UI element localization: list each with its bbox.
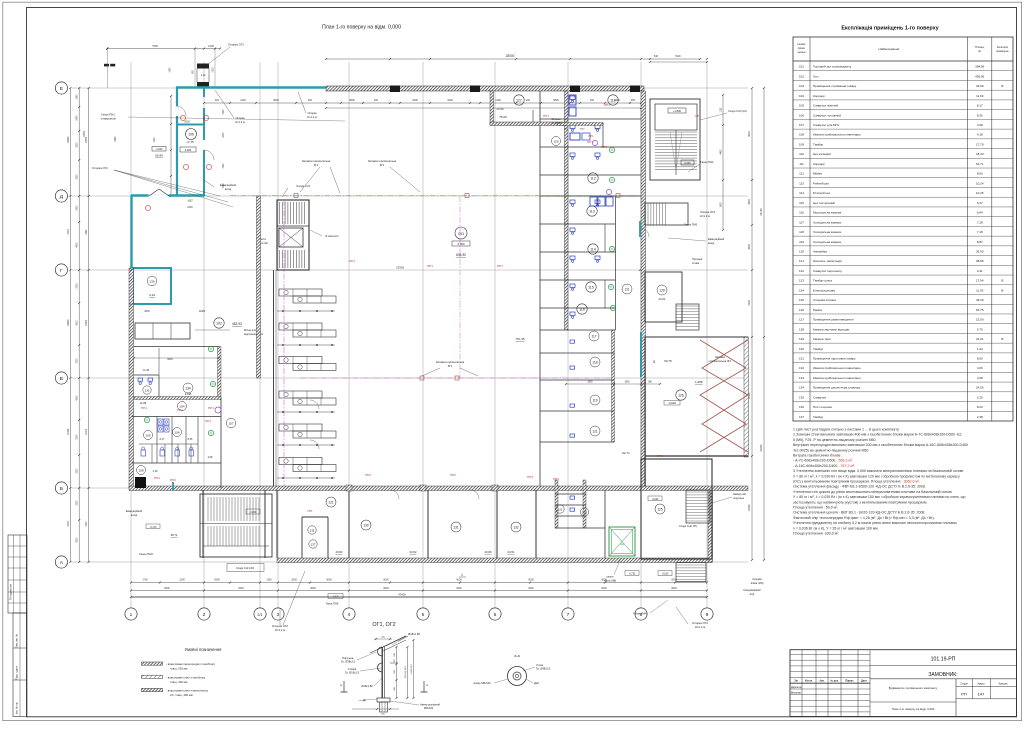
svg-text:ОГ1, ОГ2: ОГ1, ОГ2 <box>372 622 395 628</box>
svg-text:102: 102 <box>799 74 804 78</box>
svg-text:8,00: 8,00 <box>977 357 983 361</box>
svg-text:2000: 2000 <box>184 121 190 124</box>
svg-text:Ганок ПН5: Ганок ПН5 <box>684 223 698 227</box>
svg-text:118: 118 <box>592 361 597 365</box>
svg-text:(ОС) з вентильованим повітряни: (ОС) з вентильованим повітряним прошарко… <box>793 480 920 484</box>
svg-text:114: 114 <box>799 191 804 195</box>
svg-text:Погодження: Погодження <box>9 584 13 600</box>
svg-text:200: 200 <box>590 99 595 102</box>
svg-text:Холодильна камера: Холодильна камера <box>813 230 841 234</box>
svg-text:2839: 2839 <box>144 310 150 313</box>
svg-text:23,82: 23,82 <box>336 550 343 554</box>
svg-text:7300: 7300 <box>748 300 751 306</box>
svg-text:8,17: 8,17 <box>160 438 165 441</box>
svg-text:Прозора: Прозора <box>692 257 703 261</box>
svg-text:11,92: 11,92 <box>976 288 984 292</box>
svg-text:8400: 8400 <box>214 579 220 582</box>
svg-text:6000: 6000 <box>671 587 677 590</box>
svg-text:2/1: 2/1 <box>257 613 262 617</box>
svg-text:6000: 6000 <box>164 587 170 590</box>
svg-text:115: 115 <box>799 201 804 205</box>
svg-text:131: 131 <box>799 357 804 361</box>
svg-text:4200: 4200 <box>77 537 79 543</box>
svg-text:1100 ОГ2: 1100 ОГ2 <box>411 664 413 674</box>
svg-text:1150: 1150 <box>266 579 272 582</box>
svg-text:ПР1: ПР1 <box>543 114 549 118</box>
svg-text:18,43: 18,43 <box>976 152 984 156</box>
svg-text:6000: 6000 <box>383 587 389 590</box>
svg-text:117: 117 <box>799 220 804 224</box>
svg-text:5: 5 <box>422 612 425 618</box>
svg-text:6: 6 <box>494 612 497 618</box>
svg-text:24,01: 24,01 <box>976 337 984 341</box>
svg-text:4200: 4200 <box>77 320 79 326</box>
svg-text:Категорія: Категорія <box>997 46 1008 49</box>
svg-text:Анкер М8х120: Анкер М8х120 <box>473 681 491 685</box>
svg-text:129: 129 <box>659 289 665 293</box>
svg-text:22300: 22300 <box>759 444 763 452</box>
svg-text:Витрата газобетонних блоків :: Витрата газобетонних блоків : <box>793 454 842 458</box>
svg-text:126: 126 <box>678 394 684 398</box>
svg-text:ПР1: ПР1 <box>349 259 355 263</box>
svg-text:3300: 3300 <box>77 468 79 474</box>
svg-text:стінка: стінка <box>692 261 700 265</box>
svg-text:7,28: 7,28 <box>977 220 983 224</box>
svg-text:455,06: 455,06 <box>975 74 985 78</box>
svg-text:Е: Е <box>60 86 63 92</box>
svg-text:Н=1,2 м: Н=1,2 м <box>700 214 710 218</box>
svg-text:102: 102 <box>216 322 222 326</box>
svg-text:2: 2 <box>203 612 206 618</box>
svg-text:Система утеплення фасаду - ФВТ: Система утеплення фасаду - ФВТ-В3.1-Б500… <box>793 485 926 489</box>
svg-text:М8х100: М8х100 <box>424 706 434 710</box>
svg-text:111: 111 <box>799 162 804 166</box>
svg-text:Сходи Сх2:14%: Сходи Сх2:14% <box>236 567 255 570</box>
svg-text:вихід: вихід <box>225 187 232 191</box>
svg-text:Інв. № ор.: Інв. № ор. <box>15 702 19 714</box>
svg-text:123: 123 <box>582 510 587 514</box>
svg-text:-3,170: -3,170 <box>150 526 157 529</box>
svg-text:8,23: 8,23 <box>977 405 983 409</box>
svg-text:Анкер-розпірний: Анкер-розпірний <box>420 703 440 707</box>
svg-text:-1,800: -1,800 <box>250 512 257 514</box>
svg-text:11000: 11000 <box>86 428 88 435</box>
svg-text:8,35: 8,35 <box>977 113 983 117</box>
svg-text:6000: 6000 <box>310 587 316 590</box>
svg-text:10830: 10830 <box>67 319 70 326</box>
svg-text:Утеплення фундаменту на глибин: Утеплення фундаменту на глибину 3,2 м ни… <box>793 521 957 525</box>
svg-text:Н=1,2 м: Н=1,2 м <box>275 628 285 632</box>
svg-text:зігівка (136): зігівка (136) <box>751 582 764 585</box>
svg-text:11030: 11030 <box>67 428 70 435</box>
svg-text:5800: 5800 <box>553 99 559 102</box>
svg-text:У = 80 кг / м³, λ = 0,039 Вт /: У = 80 кг / м³, λ = 0,039 Вт / (м х К) з… <box>793 474 960 478</box>
svg-text:1: 1 <box>461 573 463 577</box>
svg-text:6950: 6950 <box>167 358 173 361</box>
svg-text:Місце для: Місце для <box>244 328 257 332</box>
svg-text:130: 130 <box>799 347 804 351</box>
svg-text:1700: 1700 <box>142 579 148 582</box>
svg-text:ПР1: ПР1 <box>497 264 503 268</box>
svg-text:Підп. і дата: Підп. і дата <box>15 666 19 680</box>
svg-text:114: 114 <box>590 248 596 252</box>
svg-text:Торговий зал супермаркету: Торговий зал супермаркету <box>813 65 852 69</box>
svg-text:110: 110 <box>610 99 616 103</box>
svg-text:540: 540 <box>654 55 659 58</box>
svg-text:7400: 7400 <box>86 521 88 527</box>
svg-text:2236: 2236 <box>187 206 193 209</box>
svg-text:6000: 6000 <box>456 587 462 590</box>
svg-text:Затяжка горизонтальна: Затяжка горизонтальна <box>368 159 397 163</box>
svg-text:Коридор: Коридор <box>813 162 825 166</box>
svg-text:Тамбур: Тамбур <box>813 347 824 351</box>
svg-text:-0,020: -0,020 <box>332 597 339 599</box>
svg-text:№ док.: № док. <box>830 680 839 683</box>
svg-text:122: 122 <box>799 269 804 273</box>
svg-text:118: 118 <box>799 230 804 234</box>
svg-text:24,01: 24,01 <box>659 297 666 301</box>
svg-text:113: 113 <box>589 210 595 214</box>
svg-text:ПР1: ПР1 <box>587 140 593 144</box>
svg-text:ПР1: ПР1 <box>588 134 594 138</box>
svg-text:0.000: 0.000 <box>458 242 465 246</box>
svg-text:Система утеплення цоколя - ВВТ: Система утеплення цоколя - ВВТ В3.1 - Б0… <box>793 511 925 515</box>
svg-text:122: 122 <box>558 507 563 511</box>
svg-text:Аркуш: Аркуш <box>977 683 984 686</box>
svg-text:Н=1,2 м: Н=1,2 м <box>695 625 705 629</box>
svg-text:1860: 1860 <box>77 94 79 100</box>
svg-text:103: 103 <box>799 84 804 88</box>
svg-text:Сходи Сх3: Сходи Сх3 <box>296 184 310 188</box>
svg-text:6000: 6000 <box>528 579 534 582</box>
svg-text:Опорка: Опорка <box>308 111 317 115</box>
svg-text:примі-: примі- <box>798 46 806 50</box>
svg-text:1: 1 <box>130 612 133 618</box>
svg-text:120: 120 <box>553 139 558 143</box>
svg-text:200: 200 <box>526 99 531 102</box>
svg-text:приміщень: приміщень <box>996 50 1009 53</box>
svg-text:Холодильна камера: Холодильна камера <box>813 240 841 244</box>
svg-text:127: 127 <box>799 318 804 322</box>
svg-text:ПР1: ПР1 <box>601 145 607 149</box>
svg-text:Коридор: Коридор <box>813 94 825 98</box>
svg-text:132: 132 <box>799 366 804 370</box>
svg-text:Н=1,2 м: Н=1,2 м <box>235 120 245 124</box>
svg-text:757,35: 757,35 <box>515 337 525 341</box>
svg-text:4,08: 4,08 <box>977 376 983 380</box>
svg-text:108: 108 <box>799 133 804 137</box>
svg-text:113: 113 <box>799 181 804 185</box>
svg-text:4,18: 4,18 <box>153 470 158 473</box>
svg-text:Приміщення рамки введення: Приміщення рамки введення <box>813 318 854 322</box>
svg-text:Опорка: Опорка <box>236 116 245 120</box>
svg-text:1923: 1923 <box>154 137 156 143</box>
svg-text:1300: 1300 <box>208 44 214 48</box>
svg-text:4850: 4850 <box>748 199 751 205</box>
svg-text:4,18: 4,18 <box>977 133 983 137</box>
svg-text:4,31: 4,31 <box>977 269 983 273</box>
svg-text:Ганок ПН2: Ганок ПН2 <box>700 160 714 164</box>
svg-text:Умовні позначення: Умовні позначення <box>185 647 222 652</box>
svg-text:10930: 10930 <box>67 136 70 143</box>
svg-text:5400: 5400 <box>675 55 681 58</box>
svg-text:0.000: 0.000 <box>185 148 192 152</box>
svg-text:горизонтальна ЗГ1: горизонтальна ЗГ1 <box>709 359 732 363</box>
svg-text:3200: 3200 <box>77 500 79 506</box>
svg-text:М`ясний цех: М`ясний цех <box>813 191 831 195</box>
svg-text:поручень: поручень <box>733 497 745 500</box>
svg-text:62,71: 62,71 <box>622 451 630 455</box>
svg-text:9600: 9600 <box>349 99 355 102</box>
svg-text:-Б2 (М25) на цементно-піщаному: -Б2 (М25) на цементно-піщаному розчині М… <box>793 448 869 452</box>
svg-text:Чанмийка: Чанмийка <box>813 249 827 253</box>
svg-text:950 (Н) ОГ1: 950 (Н) ОГ1 <box>405 665 407 678</box>
svg-text:116: 116 <box>579 308 585 312</box>
svg-text:Приміщення підготовки товару: Приміщення підготовки товару <box>813 357 856 361</box>
svg-text:119: 119 <box>592 399 597 403</box>
svg-text:110: 110 <box>799 152 804 156</box>
svg-text:- влаштовані стіни з монолітно: - влаштовані стіни з монолітного <box>166 689 209 693</box>
svg-text:Зам. інв. №: Зам. інв. № <box>15 634 19 648</box>
svg-text:застосовують, що нагвинчують (: застосовують, що нагвинчують (кустом) з … <box>793 500 927 504</box>
svg-text:Опорка ОГ1: Опорка ОГ1 <box>92 166 108 170</box>
svg-text:1523: 1523 <box>223 109 225 115</box>
svg-text:124: 124 <box>799 288 804 292</box>
svg-text:60,75: 60,75 <box>664 359 672 363</box>
svg-text:шахта: шахта <box>606 576 614 579</box>
svg-text:6000: 6000 <box>528 587 534 590</box>
svg-text:200: 200 <box>374 99 379 102</box>
svg-text:ПР2: ПР2 <box>365 473 371 477</box>
svg-text:136: 136 <box>149 280 154 284</box>
svg-text:-0,020: -0,020 <box>652 499 659 501</box>
svg-text:2,20: 2,20 <box>977 395 983 399</box>
svg-text:щення: щення <box>798 51 806 54</box>
svg-text:ПР1: ПР1 <box>205 419 211 423</box>
svg-text:4,08: 4,08 <box>977 123 983 127</box>
svg-text:1303: 1303 <box>213 67 215 73</box>
svg-text:Виконав: Виконав <box>791 692 801 695</box>
svg-text:1400: 1400 <box>495 99 501 102</box>
svg-text:Тр. Ø38х2,5: Тр. Ø38х2,5 <box>536 667 551 671</box>
svg-text:Санвузол: Санвузол <box>813 395 826 399</box>
svg-text:4800: 4800 <box>748 244 751 250</box>
svg-text:60,75: 60,75 <box>976 308 984 312</box>
svg-text:4200: 4200 <box>77 395 79 401</box>
svg-text:Н=1,2 м: Н=1,2 м <box>307 115 317 119</box>
svg-text:117: 117 <box>591 335 596 339</box>
svg-text:Комунікаційний: Комунікаційний <box>743 589 761 592</box>
svg-text:121: 121 <box>592 430 598 434</box>
svg-text:ПР1: ПР1 <box>604 103 610 107</box>
svg-text:38,71: 38,71 <box>171 533 178 537</box>
svg-text:2600: 2600 <box>77 205 79 211</box>
svg-text:6000: 6000 <box>601 587 607 590</box>
svg-text:Тамбур: Тамбур <box>813 415 824 419</box>
svg-text:вихід: вихід <box>708 241 715 245</box>
svg-text:107: 107 <box>799 123 804 127</box>
svg-text:- влаштовані перегородки з газ: - влаштовані перегородки з газоблоку <box>166 662 216 666</box>
svg-text:17,70: 17,70 <box>976 142 984 146</box>
svg-text:121: 121 <box>328 501 334 505</box>
svg-text:2 Зовнішні стіни виконати завт: 2 Зовнішні стіни виконати завтовшки 400 … <box>793 433 962 437</box>
svg-text:товщ. 200 мм: товщ. 200 мм <box>170 667 188 671</box>
svg-text:ЗГ1: ЗГ1 <box>448 364 453 368</box>
svg-text:-2.000: -2.000 <box>156 148 163 151</box>
svg-text:2400: 2400 <box>77 115 79 121</box>
svg-text:Внутрішні перегородки виконати: Внутрішні перегородки виконати завтовшки… <box>793 443 968 447</box>
svg-text:1520: 1520 <box>223 163 225 169</box>
svg-text:Сходи Сх2( і41): Сходи Сх2( і41) <box>728 109 747 113</box>
svg-text:101.19-РП: 101.19-РП <box>931 657 956 663</box>
svg-text:24739: 24739 <box>759 208 763 216</box>
svg-text:125: 125 <box>799 298 804 302</box>
svg-text:1.12: 1.12 <box>201 74 206 77</box>
svg-text:1687: 1687 <box>187 200 193 203</box>
svg-text:9: 9 <box>706 612 709 618</box>
svg-text:3300: 3300 <box>77 358 79 364</box>
svg-text:133: 133 <box>145 388 150 392</box>
svg-text:Сходи Сх4( і37): Сходи Сх4( і37) <box>679 525 697 528</box>
svg-text:План 1-го поверху на відм. 0,: План 1-го поверху на відм. 0,000 <box>322 25 401 31</box>
svg-text:9440: 9440 <box>115 136 117 142</box>
svg-text:1180: 1180 <box>721 107 723 113</box>
svg-text:Ø18х1,80: Ø18х1,80 <box>361 684 373 688</box>
svg-text:38,80: 38,80 <box>976 259 984 263</box>
svg-text:+7,75: +7,75 <box>186 140 194 144</box>
svg-text:Поручень: Поручень <box>342 656 354 660</box>
svg-text:1930: 1930 <box>624 382 630 384</box>
svg-text:1 Цей лист розглядати спільно: 1 Цей лист розглядати спільно з листами … <box>793 428 899 432</box>
svg-text:Утеплення стін цоколя до рівня: Утеплення стін цоколя до рівня землі вик… <box>793 490 952 494</box>
svg-text:ПР1: ПР1 <box>208 406 214 410</box>
svg-text:5,70: 5,70 <box>977 327 983 331</box>
svg-text:137: 137 <box>311 542 316 546</box>
svg-text:6,27: 6,27 <box>977 201 983 205</box>
svg-text:62,71: 62,71 <box>976 162 984 166</box>
svg-text:137: 137 <box>799 415 804 419</box>
svg-text:200: 200 <box>215 99 220 102</box>
svg-text:Евакуаційний: Евакуаційний <box>220 183 237 187</box>
svg-text:а-а: а-а <box>514 654 519 658</box>
svg-text:8,87: 8,87 <box>977 240 983 244</box>
svg-text:Хол: Хол <box>813 74 819 78</box>
svg-text:12830: 12830 <box>84 130 86 137</box>
svg-text:ПР2: ПР2 <box>170 478 176 482</box>
svg-text:23,80: 23,80 <box>485 550 492 554</box>
svg-text:Підпис: Підпис <box>845 680 854 683</box>
svg-text:4,08: 4,08 <box>208 456 213 459</box>
svg-text:Камера тари: Камера тари <box>813 337 831 341</box>
svg-text:Кімната прибирального інвентар: Кімната прибирального інвентарю <box>813 133 861 137</box>
svg-text:ПР1: ПР1 <box>141 406 147 410</box>
svg-text:- А-7С-608х408х200-D500 - 568,: - А-7С-608х408х200-D500 - 568,3 м³. <box>793 459 853 463</box>
svg-text:121: 121 <box>799 259 804 263</box>
svg-text:11,60: 11,60 <box>976 94 984 98</box>
svg-text:8,35: 8,35 <box>188 438 193 441</box>
svg-text:6,23: 6,23 <box>149 293 155 297</box>
svg-text:17,94: 17,94 <box>976 279 984 283</box>
svg-text:Санвузол для МГН: Санвузол для МГН <box>813 123 839 127</box>
svg-text:15,00: 15,00 <box>976 318 984 322</box>
svg-text:125: 125 <box>657 508 663 512</box>
svg-text:4420: 4420 <box>721 149 723 155</box>
svg-text:384,56: 384,56 <box>975 65 985 69</box>
svg-text:107: 107 <box>228 421 233 425</box>
svg-text:Санвузол персоналу: Санвузол персоналу <box>813 269 842 273</box>
svg-text:Арк.: Арк. <box>819 680 824 683</box>
svg-text:Найменування: Найменування <box>879 47 900 51</box>
svg-text:ліфта (і38): ліфта (і38) <box>604 580 616 583</box>
svg-text:23,82: 23,82 <box>410 550 417 554</box>
svg-text:Тр. Ø38х2,5: Тр. Ø38х2,5 <box>341 660 356 664</box>
svg-text:24,51: 24,51 <box>508 550 515 554</box>
svg-text:Приміщення диспетчера сховища: Приміщення диспетчера сховища <box>813 386 860 390</box>
svg-text:Стояка: Стояка <box>348 667 357 671</box>
svg-text:105: 105 <box>799 104 804 108</box>
svg-text:Площа утеплення - 50,0 м².: Площа утеплення - 50,0 м². <box>793 506 838 510</box>
svg-text:ЗГ1: ЗГ1 <box>314 163 319 167</box>
svg-text:Директор: Директор <box>791 686 802 689</box>
svg-text:10800: 10800 <box>86 319 88 326</box>
svg-text:35,90: 35,90 <box>976 249 984 253</box>
svg-text:Тамбур: Тамбур <box>813 142 824 146</box>
svg-text:товщ. 400 мм: товщ. 400 мм <box>170 680 188 684</box>
svg-text:127: 127 <box>516 99 522 103</box>
svg-text:112: 112 <box>799 172 804 176</box>
svg-text:134: 134 <box>185 387 191 391</box>
svg-text:Площа,: Площа, <box>975 45 985 49</box>
svg-text:В: В <box>1001 84 1003 88</box>
svg-text:Ø18х1,80: Ø18х1,80 <box>408 632 420 636</box>
svg-text:Цех гастрономії: Цех гастрономії <box>813 201 835 205</box>
svg-text:10,25: 10,25 <box>976 191 984 195</box>
svg-text:Ганок ПН6: Ганок ПН6 <box>326 602 339 606</box>
svg-text:+1.800: +1.800 <box>673 109 682 113</box>
svg-text:23739: 23739 <box>496 107 504 111</box>
svg-text:7: 7 <box>567 612 570 618</box>
svg-text:109: 109 <box>188 133 194 137</box>
svg-text:В комплекті: В комплекті <box>325 235 338 238</box>
svg-text:Кімната прибирального інвентар: Кімната прибирального інвентарю <box>813 366 861 370</box>
svg-text:Електрощитова: Електрощитова <box>813 288 835 292</box>
svg-text:11,48: 11,48 <box>143 369 149 372</box>
svg-text:23938: 23938 <box>396 266 404 270</box>
svg-text:4,06: 4,06 <box>977 366 983 370</box>
svg-text:Санвузол жіночий: Санвузол жіночий <box>813 104 838 108</box>
svg-text:2,38: 2,38 <box>977 415 983 419</box>
svg-text:24,95: 24,95 <box>185 392 192 396</box>
svg-text:Дн8: Дн8 <box>534 681 539 685</box>
svg-text:Стадія: Стадія <box>960 683 968 686</box>
svg-text:Рампа: Рампа <box>813 308 822 312</box>
svg-text:120: 120 <box>799 249 804 253</box>
svg-text:75,00: 75,00 <box>499 115 507 119</box>
svg-text:7500: 7500 <box>152 44 158 48</box>
svg-text:1300: 1300 <box>179 579 185 582</box>
svg-text:2030: 2030 <box>223 132 225 138</box>
svg-text:Евакуаційний: Евакуаційний <box>708 237 725 241</box>
svg-text:10,24: 10,24 <box>976 181 984 185</box>
svg-text:Насосна, запас води: Насосна, запас води <box>813 259 842 263</box>
svg-text:Кіл.уч.: Кіл.уч. <box>805 680 813 683</box>
svg-text:6000: 6000 <box>456 579 462 582</box>
svg-text:Затяжка: Затяжка <box>715 355 725 359</box>
svg-text:Морозильна камера: Морозильна камера <box>813 211 841 215</box>
svg-text:Дата: Дата <box>861 680 867 683</box>
svg-text:134: 134 <box>799 386 804 390</box>
svg-text:ПР1: ПР1 <box>553 477 559 481</box>
